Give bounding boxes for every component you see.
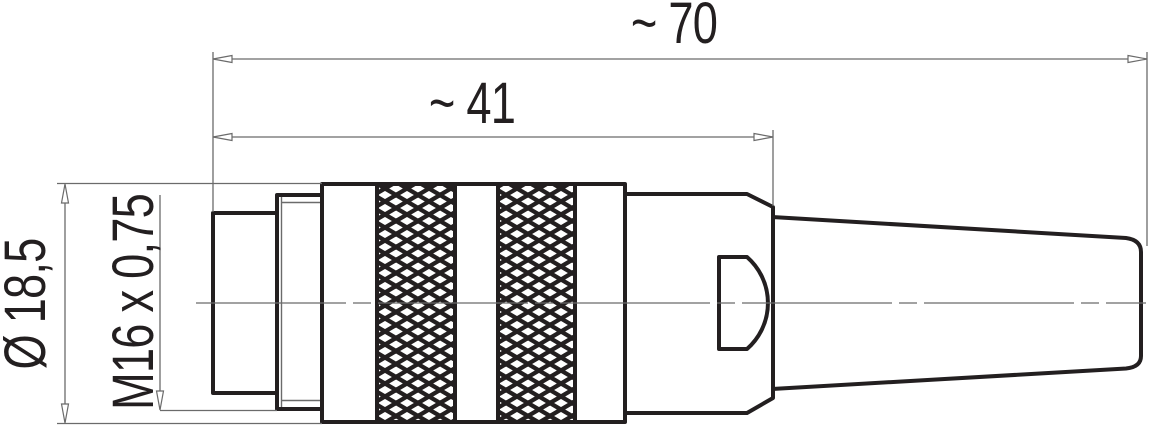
thread-ring [277, 195, 322, 409]
arrow-left-icon [213, 134, 232, 141]
dim-diameter: Ø 18,5 [0, 184, 69, 423]
total-length-label: ~ 70 [631, 0, 717, 56]
body-length-label: ~ 41 [429, 72, 515, 137]
arrow-up-icon [62, 184, 69, 203]
arrow-down-icon [62, 404, 69, 423]
dim-thread: M16 x 0,75 [102, 194, 167, 410]
technical-drawing-canvas: ~ 70 ~ 41 Ø 18,5 M16 x 0,75 [0, 0, 1151, 427]
arrow-right-icon [1128, 56, 1147, 63]
thread-label: M16 x 0,75 [102, 194, 167, 410]
dim-body-length: ~ 41 [213, 72, 773, 141]
diameter-label: Ø 18,5 [0, 238, 58, 369]
connector-side-view-drawing: ~ 70 ~ 41 Ø 18,5 M16 x 0,75 [0, 0, 1151, 427]
arrow-left-icon [213, 56, 232, 63]
arrow-right-icon [754, 134, 773, 141]
dim-total-length: ~ 70 [213, 0, 1147, 63]
